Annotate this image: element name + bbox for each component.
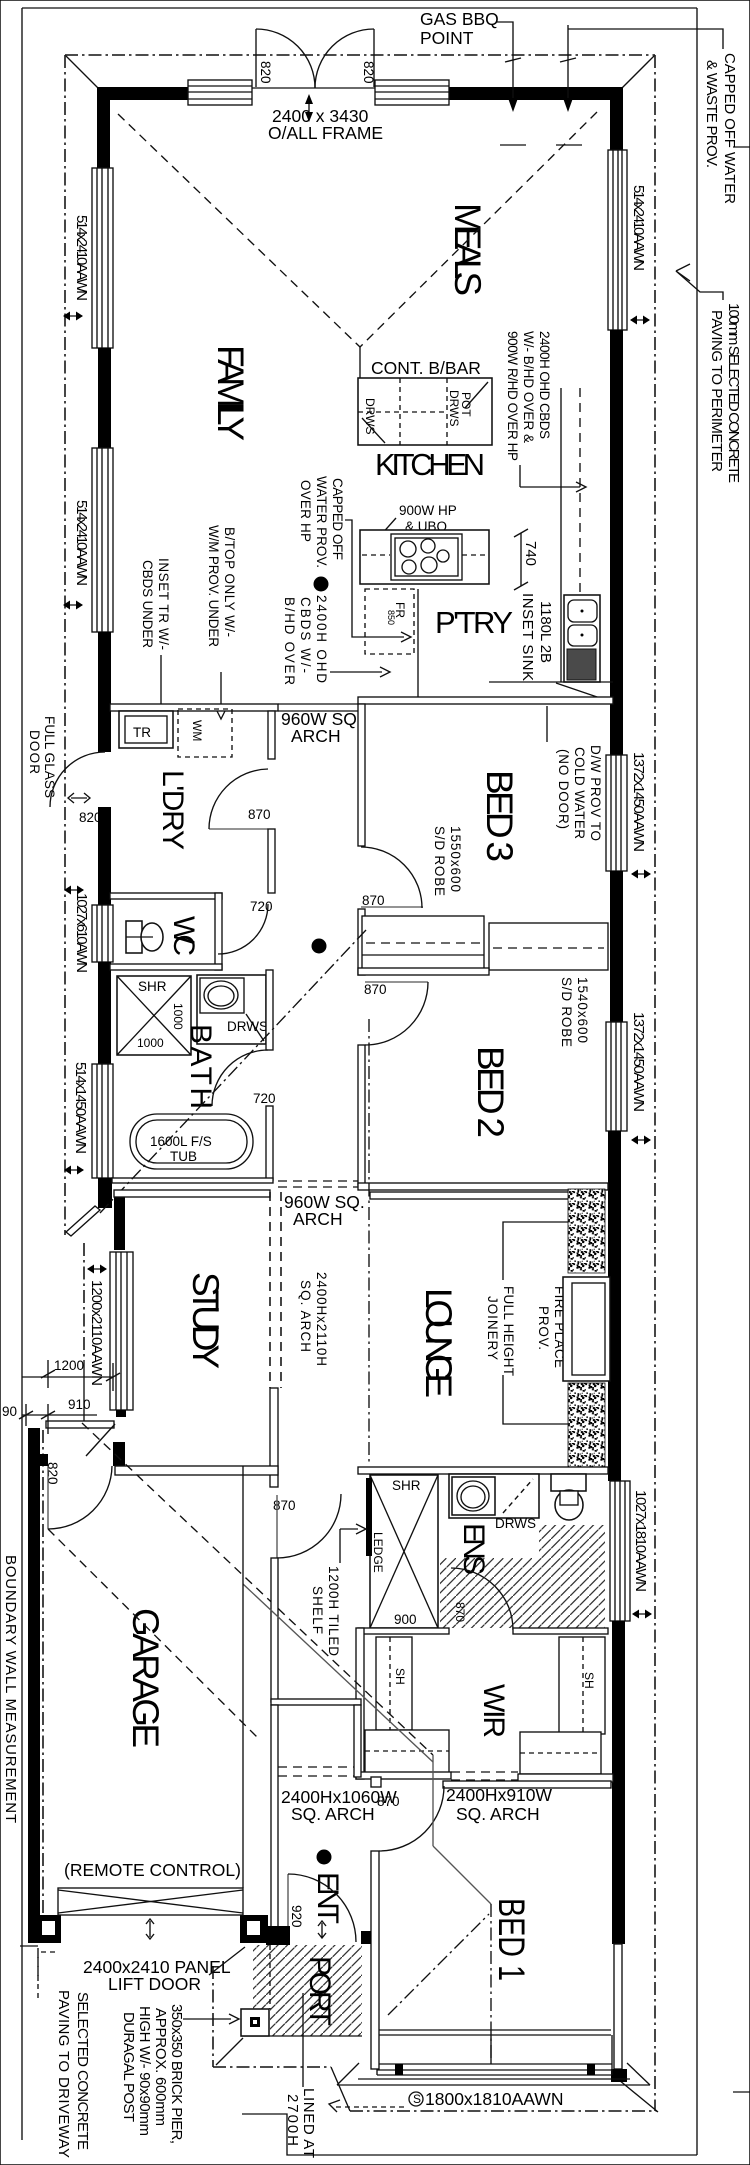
svg-text:SHR: SHR: [138, 979, 167, 994]
svg-text:820: 820: [79, 810, 102, 825]
svg-text:1200: 1200: [54, 1358, 84, 1373]
svg-text:KITCHEN: KITCHEN: [375, 447, 485, 482]
svg-text:SHELF: SHELF: [310, 1586, 325, 1634]
svg-text:PORT: PORT: [303, 1956, 336, 2026]
svg-text:ARCH: ARCH: [293, 1209, 343, 1229]
svg-text:S: S: [413, 2092, 421, 2106]
svg-text:1180L 2B: 1180L 2B: [537, 601, 554, 663]
svg-text:LEDGE: LEDGE: [371, 1532, 385, 1573]
svg-text:870: 870: [453, 1602, 467, 1622]
svg-text:DRWS: DRWS: [495, 1516, 536, 1531]
svg-text:B/HD OVER: B/HD OVER: [282, 597, 297, 685]
svg-text:514x1450AAWN: 514x1450AAWN: [72, 1062, 89, 1154]
svg-text:350x350 BRICK PIER,: 350x350 BRICK PIER,: [168, 2004, 185, 2144]
svg-text:FULL HEIGHT: FULL HEIGHT: [501, 1286, 516, 1376]
svg-text:POINT: POINT: [420, 28, 474, 48]
svg-text:WATER PROV.: WATER PROV.: [314, 476, 329, 568]
svg-text:1550x600: 1550x600: [448, 826, 463, 892]
svg-text:DRWS: DRWS: [227, 1019, 268, 1034]
svg-text:870: 870: [248, 807, 271, 822]
svg-text:BED 3: BED 3: [479, 770, 520, 862]
svg-text:514x2410AAWN: 514x2410AAWN: [630, 185, 647, 271]
svg-text:DOOR: DOOR: [27, 730, 42, 774]
svg-text:2700H: 2700H: [284, 2094, 301, 2146]
svg-text:900W R/HD OVER HP: 900W R/HD OVER HP: [505, 331, 520, 461]
svg-text:PAVING TO DRIVEWAY: PAVING TO DRIVEWAY: [55, 1990, 72, 2158]
svg-text:SHR: SHR: [392, 1478, 421, 1493]
svg-text:1200x2110AAWN: 1200x2110AAWN: [88, 1280, 105, 1386]
svg-text:870: 870: [364, 982, 387, 997]
svg-text:870: 870: [362, 893, 385, 908]
svg-text:720: 720: [253, 1091, 276, 1106]
svg-text:SH: SH: [582, 1672, 596, 1689]
svg-text:SELECTED CONCRETE: SELECTED CONCRETE: [74, 1992, 91, 2150]
svg-text:PAVING TO PERIMETER: PAVING TO PERIMETER: [708, 310, 725, 472]
svg-text:GARAGE: GARAGE: [125, 1608, 166, 1748]
svg-text:HIGH W/- 90x90mm: HIGH W/- 90x90mm: [136, 2006, 153, 2136]
svg-text:INSET TR W/-: INSET TR W/-: [156, 558, 171, 650]
svg-text:W/- B/HD OVER &: W/- B/HD OVER &: [521, 331, 536, 443]
svg-text:740: 740: [522, 541, 539, 566]
svg-text:LINED AT: LINED AT: [300, 2088, 317, 2158]
svg-text:900: 900: [394, 1612, 417, 1627]
svg-text:DRWS: DRWS: [363, 398, 377, 434]
svg-text:B/TOP ONLY W/-: B/TOP ONLY W/-: [222, 527, 237, 637]
svg-text:DRWS: DRWS: [447, 390, 461, 426]
svg-text:O/ALL FRAME: O/ALL FRAME: [268, 123, 383, 143]
svg-text:1027x1810AAWN: 1027x1810AAWN: [632, 1490, 649, 1592]
svg-text:870: 870: [377, 1794, 400, 1809]
svg-text:TUB: TUB: [170, 1149, 197, 1164]
svg-text:LIFT DOOR: LIFT DOOR: [108, 1974, 201, 1994]
svg-text:STUDY: STUDY: [185, 1272, 226, 1369]
svg-text:L'DRY: L'DRY: [156, 770, 189, 850]
svg-text:BATH: BATH: [184, 1024, 217, 1109]
svg-text:ARCH: ARCH: [291, 726, 341, 746]
svg-text:WM: WM: [190, 720, 204, 741]
svg-text:1600L F/S: 1600L F/S: [150, 1134, 212, 1149]
svg-text:(REMOTE CONTROL): (REMOTE CONTROL): [64, 1860, 241, 1880]
svg-text:CBDS W/-: CBDS W/-: [298, 597, 313, 673]
svg-text:1372x1450AAWN: 1372x1450AAWN: [630, 752, 647, 852]
svg-text:1800x1810AAWN: 1800x1810AAWN: [425, 2089, 563, 2109]
svg-text:COLD WATER: COLD WATER: [572, 747, 587, 839]
svg-text:1027x610AWN: 1027x610AWN: [73, 893, 90, 973]
svg-text:90: 90: [2, 1404, 17, 1419]
svg-text:920: 920: [289, 1905, 304, 1928]
svg-text:720: 720: [250, 899, 273, 914]
svg-text:GAS BBQ: GAS BBQ: [420, 9, 499, 29]
svg-text:CBDS UNDER: CBDS UNDER: [140, 560, 155, 648]
svg-text:900W HP: 900W HP: [399, 503, 457, 518]
svg-text:850: 850: [386, 610, 396, 625]
svg-text:APPROX. 600mm: APPROX. 600mm: [152, 2008, 169, 2126]
svg-text:820: 820: [361, 61, 376, 84]
svg-text:P'TRY: P'TRY: [435, 605, 513, 640]
svg-text:SQ. ARCH: SQ. ARCH: [456, 1804, 540, 1824]
svg-text:ENS: ENS: [457, 1523, 490, 1575]
svg-text:PROV.: PROV.: [536, 1306, 551, 1350]
svg-text:& WASTE PROV.: & WASTE PROV.: [703, 60, 720, 168]
svg-text:W/M PROV. UNDER: W/M PROV. UNDER: [206, 525, 221, 647]
svg-text:910: 910: [68, 1397, 91, 1412]
svg-text:CAPPED OFF WATER: CAPPED OFF WATER: [721, 53, 738, 204]
svg-text:514x2410AAWN: 514x2410AAWN: [73, 215, 90, 301]
svg-text:1540x600: 1540x600: [575, 977, 590, 1043]
svg-text:2400H OHD CBDS: 2400H OHD CBDS: [537, 331, 552, 439]
svg-text:OVER HP: OVER HP: [298, 480, 313, 542]
svg-text:LOUNGE: LOUNGE: [418, 1288, 459, 1398]
svg-text:S/D ROBE: S/D ROBE: [559, 977, 574, 1047]
svg-text:514x2410AAWN: 514x2410AAWN: [73, 500, 90, 586]
svg-text:100mm SELECTED CONCRETE: 100mm SELECTED CONCRETE: [725, 303, 742, 483]
svg-text:SQ. ARCH: SQ. ARCH: [298, 1280, 313, 1352]
svg-text:BED 1: BED 1: [491, 1898, 532, 1981]
svg-text:BED 2: BED 2: [470, 1046, 511, 1138]
svg-text:1000: 1000: [171, 1003, 185, 1030]
svg-text:SQ. ARCH: SQ. ARCH: [291, 1804, 375, 1824]
svg-text:DURAGAL POST: DURAGAL POST: [120, 2012, 137, 2122]
svg-text:WC: WC: [167, 916, 200, 956]
svg-text:2400Hx2110H: 2400Hx2110H: [314, 1272, 329, 1366]
svg-text:CAPPED OFF: CAPPED OFF: [330, 478, 345, 560]
svg-text:S/D ROBE: S/D ROBE: [432, 826, 447, 896]
svg-text:820: 820: [258, 61, 273, 84]
svg-text:820: 820: [45, 1462, 60, 1485]
svg-text:INSET SINK: INSET SINK: [519, 593, 536, 681]
svg-text:TR: TR: [133, 725, 151, 740]
svg-text:JOINERY: JOINERY: [485, 1296, 500, 1360]
svg-text:FAMILY: FAMILY: [210, 345, 251, 441]
svg-text:(NO DOOR): (NO DOOR): [556, 749, 571, 829]
svg-text:1372x1450AAWN: 1372x1450AAWN: [630, 1012, 647, 1112]
svg-text:WIR: WIR: [477, 1684, 510, 1738]
svg-text:1200H TILED: 1200H TILED: [326, 1566, 341, 1656]
svg-text:2400H OHD: 2400H OHD: [314, 595, 329, 683]
svg-text:CONT. B/BAR: CONT. B/BAR: [371, 358, 481, 378]
svg-text:BOUNDARY WALL MEASUREMENT: BOUNDARY WALL MEASUREMENT: [2, 1555, 19, 1823]
svg-text:SH: SH: [393, 1668, 407, 1685]
svg-text:1000: 1000: [137, 1036, 164, 1050]
svg-text:D/W PROV TO: D/W PROV TO: [588, 745, 603, 841]
svg-text:MEALS: MEALS: [447, 203, 488, 296]
